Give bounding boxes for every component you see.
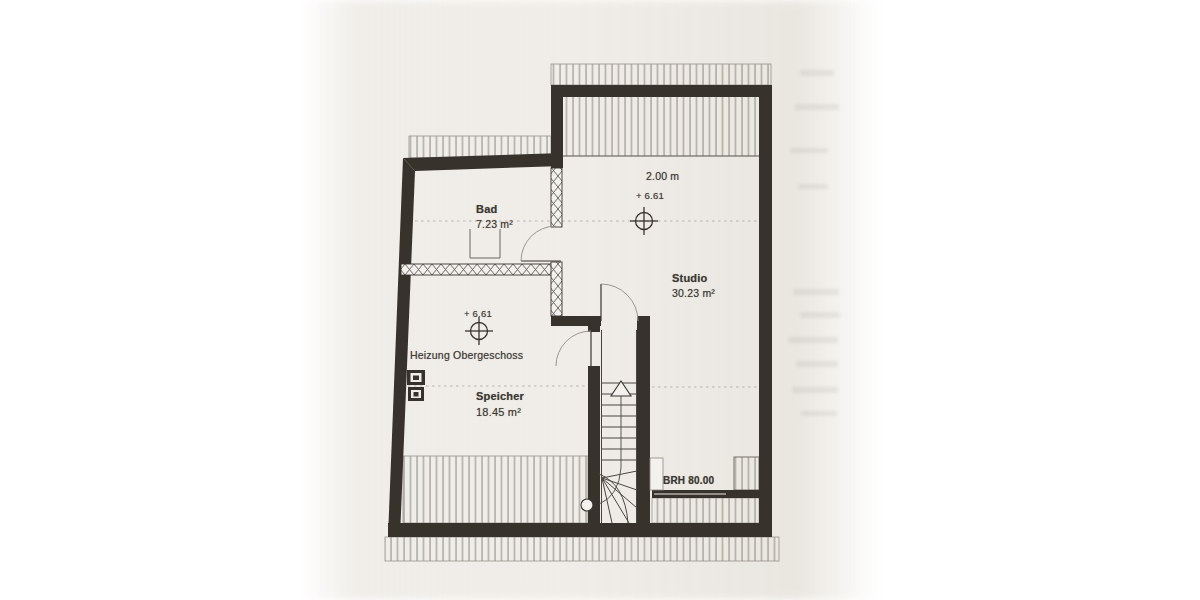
elevation-label-studio: + 6.61 bbox=[636, 190, 664, 201]
room-area-bad: 7.23 m² bbox=[476, 218, 513, 230]
insulated-wall-bad-speicher bbox=[401, 264, 561, 275]
clearance-line-label: 2.00 m bbox=[646, 170, 679, 182]
height-guide-lines bbox=[402, 221, 759, 387]
roof-hatch-bottom bbox=[385, 537, 779, 561]
chimney-symbol bbox=[407, 370, 425, 401]
elevation-marker-studio bbox=[630, 207, 658, 235]
elevation-label-speicher: + 6.61 bbox=[464, 308, 492, 319]
floor-plan-drawing bbox=[0, 0, 1200, 600]
clearance-hatch-studio bbox=[562, 97, 759, 156]
elevation-marker-speicher bbox=[465, 317, 493, 345]
shower-fixture bbox=[470, 229, 500, 258]
sill-height-label: BRH 80.00 bbox=[663, 475, 714, 486]
clearance-hatch-speicher bbox=[403, 456, 588, 523]
door-studio bbox=[601, 284, 638, 321]
room-label-studio: Studio bbox=[672, 272, 707, 284]
room-area-speicher: 18.45 m² bbox=[476, 406, 521, 418]
heizung-label: Heizung Obergeschoss bbox=[410, 349, 523, 361]
room-label-bad: Bad bbox=[476, 203, 497, 215]
insulated-wall-bad-studio bbox=[551, 168, 562, 316]
floor-plan-photo: Bad 7.23 m² Studio 30.23 m² Speicher 18.… bbox=[0, 0, 1200, 600]
room-label-speicher: Speicher bbox=[476, 390, 524, 402]
door-bad bbox=[521, 226, 561, 261]
door-speicher bbox=[556, 331, 591, 366]
room-area-studio: 30.23 m² bbox=[672, 287, 715, 299]
